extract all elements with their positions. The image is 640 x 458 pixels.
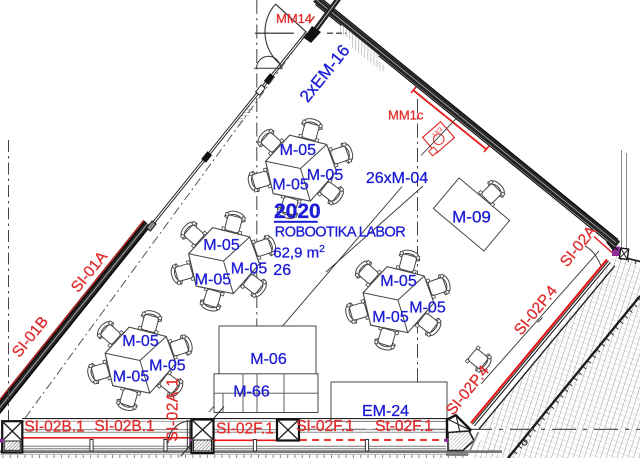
svg-text:M-05: M-05 [149,357,186,374]
svg-text:M-05: M-05 [307,167,344,184]
svg-text:2020: 2020 [274,200,321,223]
svg-text:M-06: M-06 [250,351,287,368]
svg-text:SI-02F.1: SI-02F.1 [296,418,354,435]
svg-text:M-05: M-05 [280,142,317,159]
svg-text:SI-02A.1: SI-02A.1 [165,377,182,441]
svg-text:M-05: M-05 [380,273,417,290]
svg-text:26xM-04: 26xM-04 [366,170,428,187]
svg-text:MM14: MM14 [276,11,312,26]
svg-text:M-05: M-05 [195,272,232,289]
svg-text:M-05: M-05 [409,299,446,316]
svg-text:M-66: M-66 [233,383,270,400]
svg-text:M-05: M-05 [203,237,240,254]
svg-text:M-05: M-05 [372,309,409,326]
svg-text:M-05: M-05 [122,333,159,350]
svg-text:M-05: M-05 [231,261,268,278]
svg-text:M-09: M-09 [452,207,491,226]
svg-text:St-02F.1: St-02F.1 [375,418,433,435]
svg-text:SI-02B.1: SI-02B.1 [24,419,84,436]
svg-text:ROBOOTIKA LABOR: ROBOOTIKA LABOR [275,225,405,241]
svg-text:SI-02F.1: SI-02F.1 [216,421,274,438]
svg-text:M-05: M-05 [113,369,150,386]
svg-text:M-05: M-05 [272,177,309,194]
svg-text:MM1c: MM1c [388,108,424,123]
svg-text:SI-02B.1: SI-02B.1 [94,418,154,435]
svg-text:62,9 m2: 62,9 m2 [273,243,325,262]
svg-text:26: 26 [273,262,291,279]
